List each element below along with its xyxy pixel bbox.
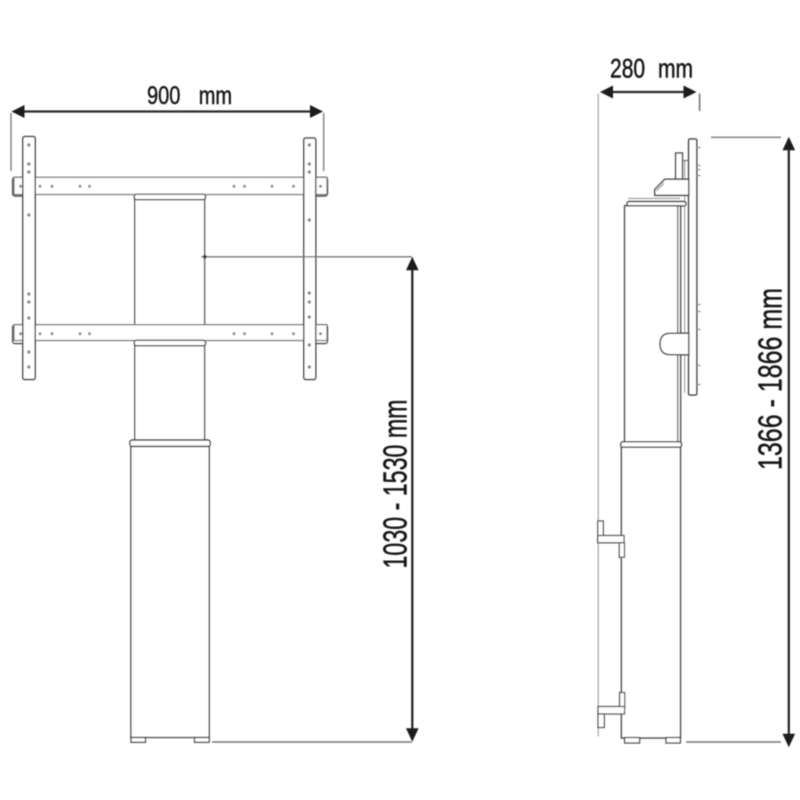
svg-text:900 mm: 900 mm [147,82,232,110]
svg-text:1030 - 1530 mm: 1030 - 1530 mm [377,400,414,569]
svg-text:280 mm: 280 mm [610,54,693,84]
svg-text:1366 - 1866 mm: 1366 - 1866 mm [752,288,789,470]
